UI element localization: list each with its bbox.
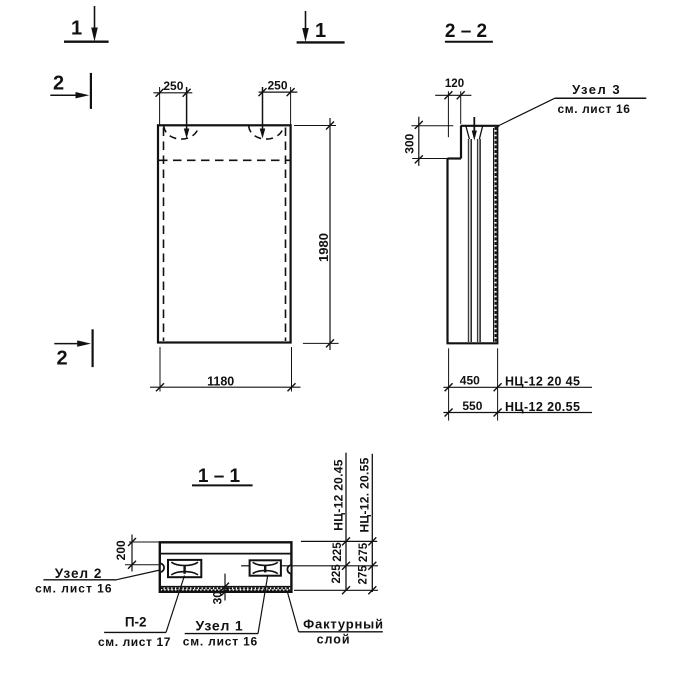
svg-text:НЦ-12 20.55: НЦ-12 20.55 xyxy=(505,400,580,414)
svg-text:1: 1 xyxy=(315,20,326,42)
svg-text:200: 200 xyxy=(114,540,128,560)
svg-text:1 – 1: 1 – 1 xyxy=(198,466,241,487)
svg-text:2 – 2: 2 – 2 xyxy=(445,21,487,42)
svg-text:550: 550 xyxy=(462,399,482,413)
svg-text:450: 450 xyxy=(460,374,480,388)
svg-text:2: 2 xyxy=(53,73,64,95)
svg-text:слой: слой xyxy=(317,633,351,647)
svg-text:120: 120 xyxy=(445,78,464,90)
svg-text:300: 300 xyxy=(403,133,417,153)
svg-text:275: 275 xyxy=(358,542,370,562)
svg-text:см. лист 16: см. лист 16 xyxy=(557,102,630,116)
svg-text:Узел 2: Узел 2 xyxy=(55,566,103,581)
svg-text:1180: 1180 xyxy=(207,375,234,389)
svg-text:250: 250 xyxy=(267,78,287,92)
svg-text:1: 1 xyxy=(71,18,82,40)
svg-text:см. лист 16: см. лист 16 xyxy=(35,582,112,596)
svg-text:Фактурный: Фактурный xyxy=(303,617,384,632)
svg-text:П-2: П-2 xyxy=(125,615,147,630)
svg-text:см. лист 16: см. лист 16 xyxy=(183,635,258,649)
svg-text:НЦ-12 20 45: НЦ-12 20 45 xyxy=(505,375,580,389)
svg-text:275: 275 xyxy=(358,565,370,585)
svg-text:см. лист 17: см. лист 17 xyxy=(98,635,171,649)
svg-text:НЦ-12. 20.55: НЦ-12. 20.55 xyxy=(358,457,372,532)
svg-text:225: 225 xyxy=(331,564,343,584)
svg-text:Узел 3: Узел 3 xyxy=(572,82,621,97)
svg-text:Узел 1: Узел 1 xyxy=(196,618,244,634)
svg-text:НЦ-12 20.45: НЦ-12 20.45 xyxy=(332,459,346,530)
svg-text:1980: 1980 xyxy=(316,233,331,262)
svg-text:225: 225 xyxy=(332,542,344,562)
svg-text:30: 30 xyxy=(211,591,225,605)
svg-text:250: 250 xyxy=(163,79,183,93)
svg-text:2: 2 xyxy=(56,347,67,369)
